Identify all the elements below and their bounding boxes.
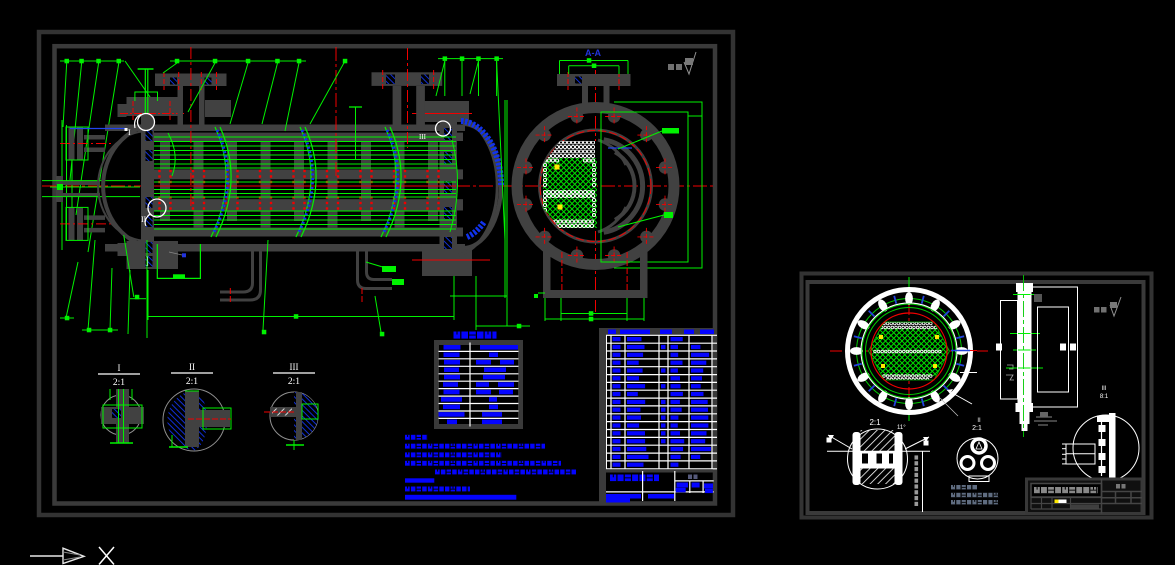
svg-text:2:1: 2:1 — [186, 377, 198, 387]
svg-text:A-A: A-A — [585, 48, 601, 58]
svg-text:I: I — [118, 363, 121, 373]
svg-text:2:1: 2:1 — [869, 418, 881, 427]
svg-text:II: II — [977, 418, 981, 424]
svg-text:2:1: 2:1 — [113, 378, 125, 388]
svg-text:III: III — [1101, 386, 1106, 392]
svg-text:II: II — [141, 215, 147, 224]
svg-text:III: III — [419, 133, 427, 141]
svg-text:8:1: 8:1 — [1100, 394, 1109, 400]
svg-text:2:1: 2:1 — [288, 377, 300, 387]
svg-text:11°: 11° — [897, 425, 906, 431]
svg-text:III: III — [290, 362, 299, 372]
svg-text:I: I — [128, 128, 131, 137]
svg-text:II: II — [189, 362, 195, 372]
svg-text:2:1: 2:1 — [972, 425, 982, 432]
